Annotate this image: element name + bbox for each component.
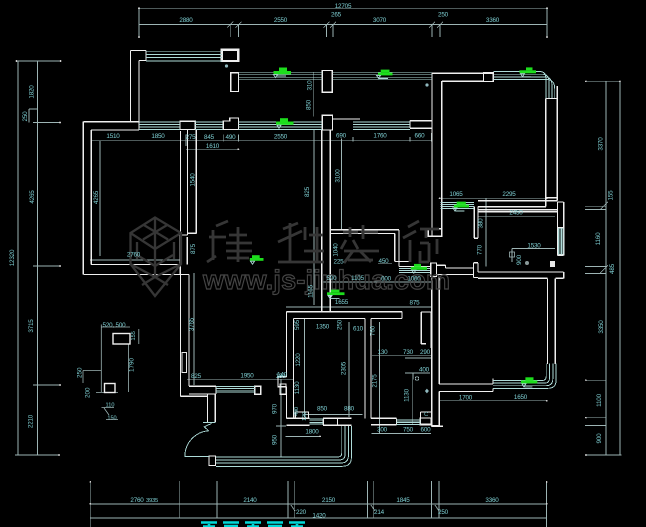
svg-text:730: 730 [403, 349, 414, 356]
svg-text:1540: 1540 [190, 173, 197, 187]
svg-text:130: 130 [378, 349, 389, 356]
svg-text:1650: 1650 [514, 394, 528, 401]
svg-text:2305: 2305 [341, 361, 348, 375]
svg-text:3935: 3935 [146, 498, 158, 504]
svg-text:2140: 2140 [243, 497, 257, 504]
svg-text:760: 760 [370, 325, 377, 336]
svg-text:3100: 3100 [335, 169, 342, 183]
svg-text:1100: 1100 [596, 393, 603, 406]
svg-text:2760: 2760 [127, 252, 141, 259]
svg-text:275: 275 [186, 134, 197, 141]
svg-text:1610: 1610 [206, 143, 220, 150]
svg-text:1760: 1760 [373, 133, 387, 140]
svg-text:600: 600 [381, 276, 392, 283]
svg-text:2550: 2550 [274, 134, 288, 141]
svg-text:250: 250 [77, 367, 84, 378]
svg-text:250: 250 [438, 12, 449, 19]
svg-text:400: 400 [419, 367, 430, 374]
svg-text:485: 485 [609, 263, 616, 274]
svg-text:845: 845 [204, 134, 215, 141]
svg-text:290: 290 [420, 349, 431, 356]
svg-text:150: 150 [107, 416, 116, 422]
svg-text:1790: 1790 [129, 357, 136, 372]
svg-text:140: 140 [277, 372, 288, 379]
svg-text:500: 500 [327, 275, 338, 282]
svg-text:250: 250 [438, 509, 449, 516]
svg-text:3715: 3715 [28, 319, 35, 333]
svg-text:3765: 3765 [189, 317, 196, 331]
svg-text:2880: 2880 [179, 17, 193, 24]
svg-text:120: 120 [302, 412, 308, 421]
svg-text:1165: 1165 [308, 284, 315, 297]
svg-text:310: 310 [307, 80, 314, 91]
svg-text:1800: 1800 [305, 429, 319, 436]
svg-text:2450: 2450 [509, 210, 523, 217]
svg-text:970: 970 [272, 403, 279, 414]
svg-text:3360: 3360 [486, 17, 500, 24]
svg-text:C: C [424, 412, 428, 418]
svg-text:660: 660 [415, 133, 426, 140]
svg-text:250: 250 [22, 111, 29, 122]
svg-text:490: 490 [226, 134, 237, 141]
svg-text:1105: 1105 [351, 275, 364, 282]
svg-text:2175: 2175 [372, 374, 379, 388]
svg-text:265: 265 [331, 12, 342, 19]
svg-text:900: 900 [516, 254, 523, 265]
svg-text:1130: 1130 [294, 381, 301, 394]
svg-text:880: 880 [344, 406, 355, 413]
svg-text:1850: 1850 [151, 133, 165, 140]
svg-text:1220: 1220 [295, 353, 302, 367]
svg-text:770: 770 [477, 244, 484, 255]
svg-text:610: 610 [353, 326, 364, 333]
svg-text:3070: 3070 [373, 17, 387, 24]
svg-text:1160: 1160 [595, 232, 602, 245]
svg-text:12320: 12320 [9, 249, 16, 266]
svg-text:1350: 1350 [316, 324, 330, 331]
svg-text:214: 214 [374, 509, 385, 516]
svg-text:595: 595 [294, 319, 301, 330]
svg-text:2760: 2760 [130, 497, 144, 504]
svg-text:1655: 1655 [335, 299, 349, 306]
svg-text:750: 750 [403, 427, 414, 434]
svg-text:1700: 1700 [459, 395, 473, 402]
svg-text:2295: 2295 [502, 191, 516, 198]
svg-text:875: 875 [190, 243, 197, 254]
svg-text:3370: 3370 [598, 137, 605, 151]
svg-text:600: 600 [421, 427, 432, 434]
svg-text:200: 200 [85, 387, 92, 398]
svg-text:3360: 3360 [485, 497, 499, 504]
svg-text:2550: 2550 [274, 17, 288, 24]
svg-text:1065: 1065 [449, 191, 463, 198]
svg-text:825: 825 [304, 186, 311, 197]
svg-text:900: 900 [596, 433, 603, 444]
svg-text:1510: 1510 [106, 133, 120, 140]
svg-text:825: 825 [191, 373, 202, 380]
svg-text:1950: 1950 [240, 373, 254, 380]
svg-text:520, 500: 520, 500 [103, 322, 127, 329]
svg-text:2210: 2210 [28, 414, 35, 428]
svg-text:1420: 1420 [312, 513, 326, 520]
svg-text:3350: 3350 [598, 320, 605, 334]
svg-text:2150: 2150 [322, 497, 336, 504]
svg-text:1820: 1820 [29, 85, 36, 99]
svg-text:155: 155 [608, 190, 615, 201]
svg-text:1845: 1845 [396, 497, 410, 504]
svg-text:490: 490 [294, 407, 300, 416]
svg-text:690: 690 [336, 133, 347, 140]
svg-text:850: 850 [306, 99, 313, 110]
svg-text:155: 155 [131, 331, 137, 340]
svg-text:4265: 4265 [93, 190, 100, 204]
svg-text:1530: 1530 [527, 243, 541, 250]
svg-text:1040: 1040 [333, 243, 340, 257]
svg-text:1130: 1130 [404, 388, 411, 401]
svg-text:950: 950 [272, 434, 279, 445]
svg-text:450: 450 [379, 258, 390, 265]
svg-text:1060: 1060 [407, 276, 421, 283]
svg-text:850: 850 [317, 406, 328, 413]
svg-text:220: 220 [296, 509, 307, 516]
svg-text:300: 300 [377, 427, 388, 434]
svg-text:380: 380 [478, 218, 485, 229]
svg-text:4265: 4265 [29, 190, 36, 204]
svg-text:250: 250 [337, 319, 344, 330]
svg-text:225: 225 [334, 259, 345, 266]
svg-text:875: 875 [410, 300, 421, 307]
svg-text:12705: 12705 [335, 3, 352, 10]
